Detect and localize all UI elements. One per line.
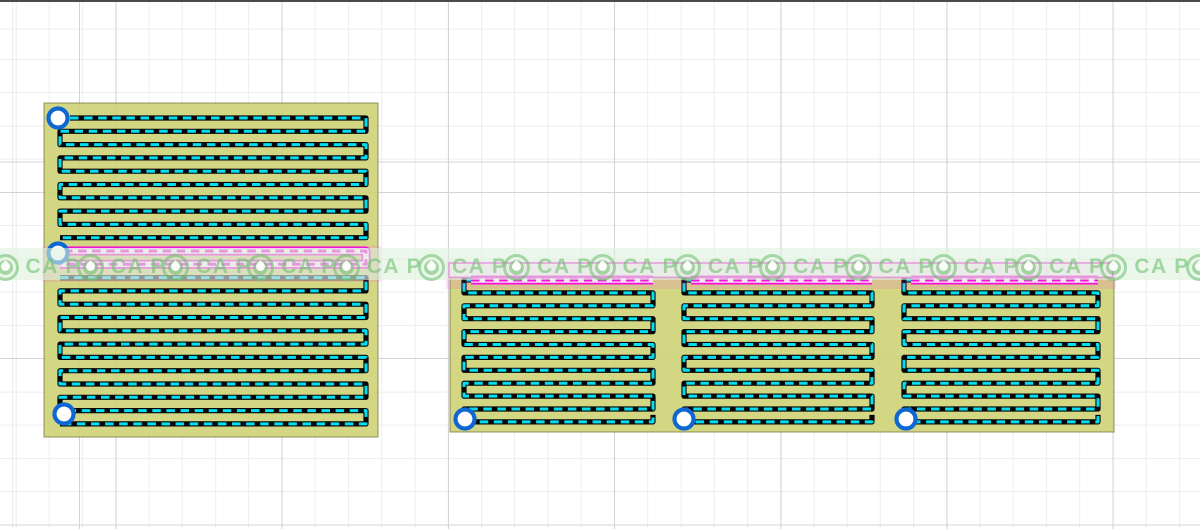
- selection-halo: [446, 261, 1116, 289]
- via-pad[interactable]: [49, 109, 68, 128]
- via-pad[interactable]: [55, 405, 74, 424]
- pcb-layer: [0, 0, 1200, 529]
- right-board[interactable]: [446, 261, 1116, 432]
- pcb-editor-canvas[interactable]: CA PCA PCA PCA PCA PCA PCA PCA PCA PCA P…: [0, 0, 1200, 529]
- left-board[interactable]: [42, 103, 381, 437]
- via-pad[interactable]: [897, 410, 916, 429]
- via-pad[interactable]: [49, 244, 68, 263]
- via-pad[interactable]: [675, 410, 694, 429]
- via-pad[interactable]: [456, 410, 475, 429]
